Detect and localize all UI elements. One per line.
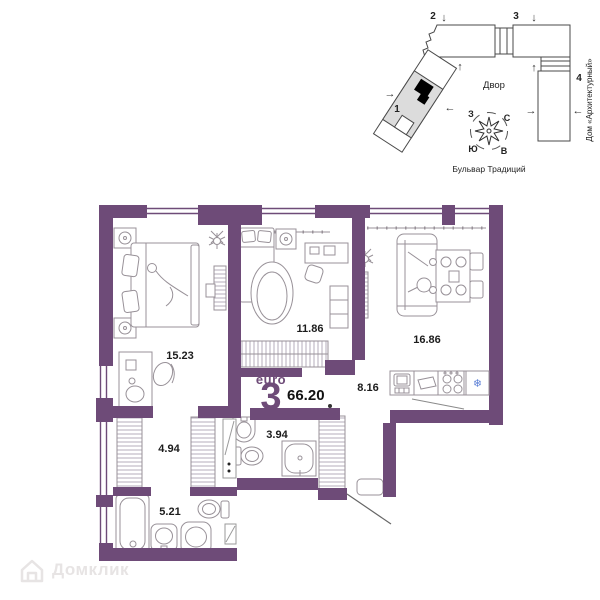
bathroom1-door-leaf (223, 419, 236, 478)
total-area-label: 66.20 (287, 387, 325, 404)
arrow-up-icon: ↑ (531, 62, 537, 74)
arrow-up-icon: ↑ (457, 61, 463, 73)
watermark-label: Домклик (52, 560, 129, 580)
building-section-3 (513, 25, 570, 57)
plant-icon (209, 231, 225, 249)
arrow-left-icon: ← (573, 105, 584, 117)
section-3-label: 3 (513, 11, 519, 22)
wall-shelf-icon (214, 266, 226, 310)
bathroom1-area-label: 3.94 (266, 429, 288, 441)
compass-south-label: Ю (468, 144, 477, 154)
wardrobe-icon (191, 417, 215, 490)
floorplan-drawing: ↓ ↓ ↑ ↑ → ← → ← 2 3 1 4 Двор Бульвар Тра… (0, 0, 600, 600)
shelving-icon (330, 286, 348, 328)
building-section-4 (538, 71, 570, 141)
sink-icon (151, 524, 177, 551)
arrow-down-icon: ↓ (531, 12, 537, 24)
courtyard-label: Двор (483, 80, 505, 91)
double-bed-icon (122, 243, 199, 327)
arrow-down-icon: ↓ (441, 12, 447, 24)
compass-west-label: З (468, 109, 474, 119)
door-hinge-dot (328, 404, 332, 408)
section-2-label: 2 (430, 11, 436, 22)
arrow-right-icon: → (526, 105, 537, 117)
toilet-icon (233, 447, 263, 465)
hallway-area-label: 4.94 (158, 443, 180, 455)
arrow-left-icon: ← (445, 102, 456, 114)
bench-icon (357, 479, 383, 495)
watermark-house-icon (18, 556, 46, 584)
sofa-icon (397, 234, 437, 316)
building-section-2 (423, 25, 495, 57)
entrance-door-swing (347, 494, 391, 524)
wardrobe-icon (319, 416, 345, 494)
living-area-label: 16.86 (413, 334, 441, 346)
watermark: Домклик (18, 556, 129, 584)
desk-icon (304, 243, 348, 284)
bedroom2-area-label: 11.86 (297, 323, 324, 335)
building-connector-23 (495, 28, 513, 54)
section-1-label: 1 (394, 104, 400, 115)
rooms-number-label: 3 (260, 376, 281, 418)
street-label: Бульвар Традиций (452, 164, 526, 174)
kitchen-area-label: 8.16 (357, 382, 378, 394)
building-connector-34 (541, 57, 570, 71)
site-plan (374, 25, 570, 152)
bathtub-icon (116, 494, 149, 554)
wardrobe-icon (117, 417, 142, 490)
kitchen-sink-icon (394, 374, 410, 393)
bedroom1-area-label: 15.23 (166, 350, 194, 362)
bathroom2-area-label: 5.21 (159, 506, 180, 518)
shower-icon (282, 441, 316, 476)
compass-rose: З С Ю В (468, 109, 511, 156)
section-4-label: 4 (576, 73, 582, 84)
compass-east-label: В (501, 146, 508, 156)
arrow-right-icon: → (385, 88, 396, 100)
sliding-wardrobe-icon (238, 341, 328, 367)
wall-shelf-icon (206, 284, 215, 297)
fridge-snowflake-icon: ❄ (473, 378, 482, 390)
speaker-icon (276, 229, 296, 249)
compass-north-label: С (504, 113, 511, 123)
floorplan-page: ↓ ↓ ↑ ↑ → ← → ← 2 3 1 4 Двор Бульвар Тра… (0, 0, 600, 600)
building-section-1 (374, 50, 457, 152)
dining-table-icon (430, 250, 484, 302)
hanging-chair-icon (251, 262, 293, 324)
kitchen-door-leaf (412, 399, 464, 409)
toilet-icon (198, 500, 229, 518)
fridge-icon: ❄ (466, 371, 489, 395)
building-name-label: Дом «Архитектурный» (585, 58, 594, 142)
